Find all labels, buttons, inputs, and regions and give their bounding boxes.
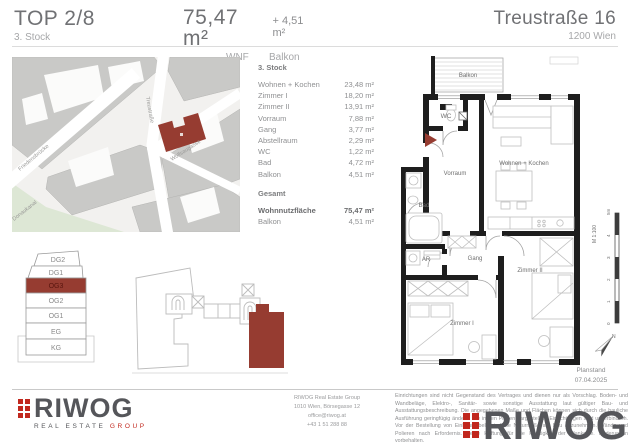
room-label-gang: Gang [468, 256, 483, 262]
north-arrow-icon: N [586, 330, 622, 364]
table-row: Bad4,72 m² [258, 157, 374, 168]
scale-bar-segments [615, 213, 619, 323]
svg-text:OG1: OG1 [49, 313, 64, 320]
svg-text:EG: EG [51, 329, 61, 336]
svg-text:OG3: OG3 [49, 283, 64, 290]
apartment-floor-plan: Balkon WC Wohnen + Kochen Vorraum Bad AR… [398, 53, 590, 383]
unit-header: TOP 2/8 3. Stock [14, 8, 95, 43]
map-intersection [147, 140, 163, 156]
table-row: WC1,22 m² [258, 146, 374, 157]
contact-email[interactable]: office@riwog.at [268, 412, 386, 421]
contact-address: 1010 Wien, Börsegasse 12 [268, 403, 386, 412]
table-floor-heading: 3. Stock [258, 63, 374, 72]
svg-text:2: 2 [606, 278, 611, 281]
riwog-watermark-logo: RIWOG [463, 408, 628, 444]
logo-sub-group: GROUP [110, 423, 147, 430]
riwog-watermark-text: RIWOG [483, 408, 628, 444]
scale-ticks: 5m 4 3 2 1 0 [606, 208, 611, 325]
address-header: Treustraße 16 1200 Wien [493, 9, 616, 42]
room-label-balkon: Balkon [459, 73, 477, 79]
north-label: N [612, 334, 616, 340]
table-row: Abstellraum2,29 m² [258, 135, 374, 146]
riwog-watermark-mark-icon [463, 413, 479, 438]
svg-text:4: 4 [606, 234, 611, 237]
room-label-vorraum: Vorraum [444, 171, 467, 177]
plan-status: Planstand 07.04.2025 [556, 366, 626, 386]
svg-text:KG: KG [51, 345, 61, 352]
table-row: Wohnen + Kochen23,48 m² [258, 79, 374, 90]
scale-label: M 1:100 [592, 225, 598, 243]
header-divider [12, 46, 618, 47]
building-level-diagram: DG2 DG1 OG3 OG2 OG1 EG KG [14, 248, 114, 366]
riwog-logo: RIWOG REAL ESTATE GROUP [18, 396, 147, 430]
svg-text:0: 0 [606, 322, 611, 325]
table-total-row: Balkon4,51 m² [258, 216, 374, 227]
table-row: Gang3,77 m² [258, 124, 374, 135]
entrance-arrow [425, 133, 437, 147]
keyplan-highlighted-unit [249, 304, 284, 368]
unit-number: TOP 2/8 [14, 8, 95, 29]
svg-text:5m: 5m [606, 208, 611, 215]
riwog-logo-mark-icon [18, 399, 30, 418]
svg-text:OG2: OG2 [49, 298, 64, 305]
table-total-heading: Gesamt [258, 189, 374, 198]
svg-text:1: 1 [606, 300, 611, 303]
area-plus: + 4,51 m² [273, 15, 319, 39]
room-area-table: 3. Stock Wohnen + Kochen23,48 m² Zimmer … [258, 63, 374, 227]
address-street: Treustraße 16 [493, 9, 616, 28]
scale-bar: M 1:100 5m 4 3 2 1 0 [588, 203, 626, 331]
neighbor-balcony-outline [550, 57, 578, 64]
room-label-wc: WC [441, 113, 452, 120]
table-row: Vorraum7,88 m² [258, 113, 374, 124]
unit-floor: 3. Stock [14, 33, 95, 43]
table-row: Zimmer I18,20 m² [258, 90, 374, 101]
room-label-wohnen: Wohnen + Kochen [499, 161, 548, 167]
area-main: 75,47 m² [183, 7, 268, 49]
area-plus-caption: Balkon [269, 53, 300, 63]
footer-divider [12, 389, 618, 390]
area-header: 75,47 m² + 4,51 m² WNF Balkon [183, 7, 318, 61]
contact-phone: +43 1 51 288 88 [268, 421, 386, 430]
address-city: 1200 Wien [493, 32, 616, 42]
svg-text:DG2: DG2 [51, 257, 66, 264]
floorplan-document-page: TOP 2/8 3. Stock 75,47 m² + 4,51 m² WNF … [0, 0, 630, 445]
key-plan [132, 246, 292, 381]
table-total-row: Wohnnutzfläche75,47 m² [258, 205, 374, 216]
svg-text:3: 3 [606, 256, 611, 259]
room-label-zimmer1: Zimmer I [450, 321, 474, 327]
riwog-logo-text: RIWOG [34, 396, 147, 420]
contact-block: RIWOG Real Estate Group 1010 Wien, Börse… [268, 394, 386, 430]
svg-text:DG1: DG1 [49, 270, 64, 277]
table-row: Zimmer II13,91 m² [258, 101, 374, 112]
logo-sub-real-estate: REAL ESTATE [34, 423, 105, 430]
room-label-bad: Bad [419, 203, 430, 209]
room-label-ar: AR [422, 257, 431, 263]
room-label-zimmer2: Zimmer II [517, 268, 543, 274]
table-row: Balkon4,51 m² [258, 169, 374, 180]
contact-company: RIWOG Real Estate Group [268, 394, 386, 403]
location-map: Treustraße Wolfsaugasse Friedensbrücke D… [12, 57, 240, 232]
